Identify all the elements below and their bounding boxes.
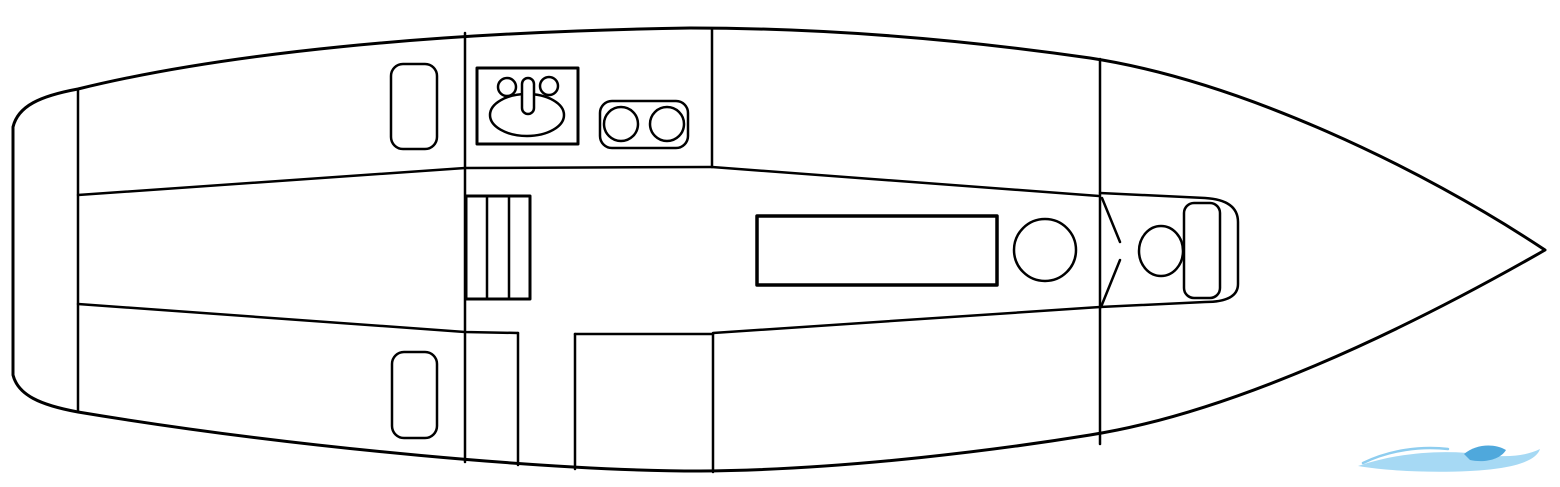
toilet-tank bbox=[1184, 203, 1220, 298]
boat-plan-drawing bbox=[0, 0, 1560, 487]
sink-faucet bbox=[522, 78, 534, 114]
watermark-wave-swoosh bbox=[1358, 449, 1540, 472]
boat-plan bbox=[0, 0, 1560, 487]
hull-outline bbox=[13, 28, 1545, 471]
